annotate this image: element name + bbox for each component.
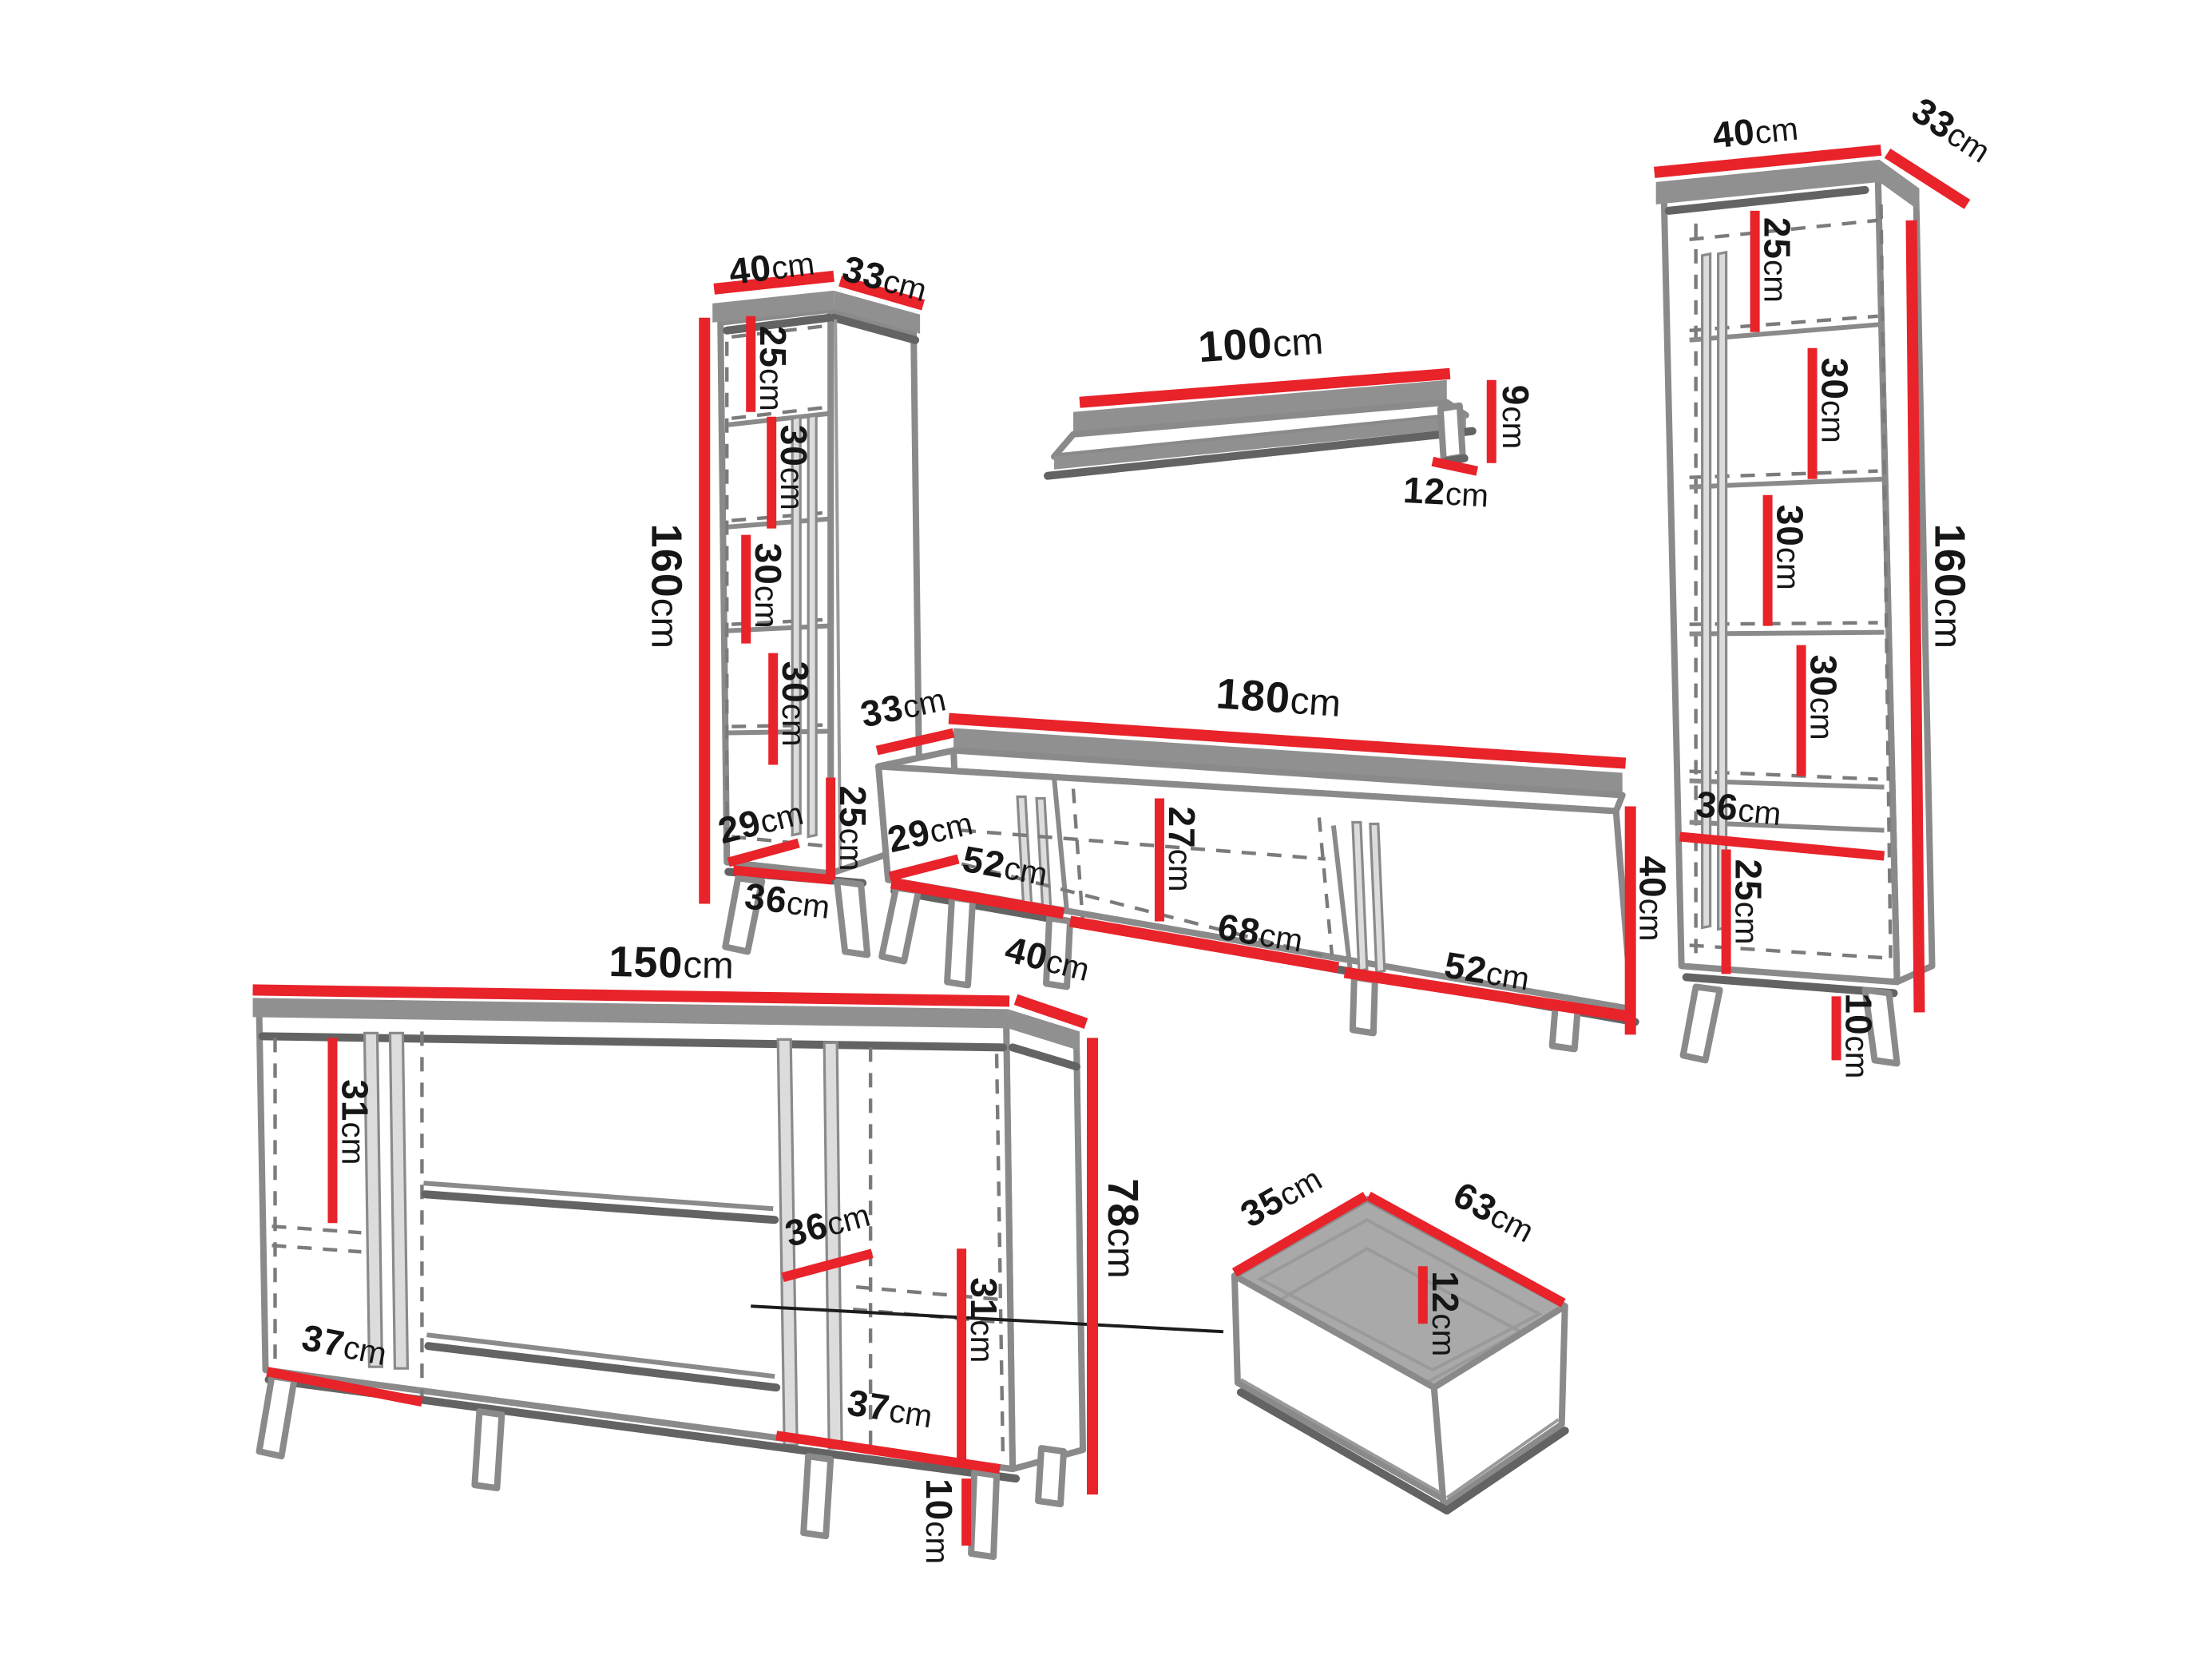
- drawer-detail: 35cm 63cm 12cm: [1234, 1157, 1565, 1510]
- diagram-canvas: 40cm 33cm 160cm 25cm 30cm 30cm 30cm 25cm…: [0, 0, 2212, 1659]
- door-handle-strip: [1703, 254, 1711, 928]
- dim-label-drawer-width: 63cm: [1447, 1173, 1542, 1250]
- furniture-leg: [1353, 977, 1375, 1033]
- furniture-leg: [803, 1456, 830, 1536]
- furniture-leg: [882, 887, 918, 961]
- wall-shelf: 100cm 9cm 12cm: [1048, 315, 1536, 514]
- dim-label-right-cabinet-section-1: 25cm: [1757, 217, 1798, 303]
- dim-label-sideboard-top-width: 150cm: [608, 938, 734, 988]
- furniture-leg: [837, 881, 867, 955]
- dim-line-shelf-depth: [1433, 462, 1477, 471]
- dim-line-sideboard-top-width: [253, 990, 1010, 1001]
- dim-label-left-cabinet-bottom-section: 25cm: [832, 786, 874, 871]
- furniture-leg: [971, 1472, 997, 1557]
- shelf-bracket: [1441, 406, 1463, 460]
- dim-label-tv-stand-height: 40cm: [1632, 855, 1674, 941]
- dim-label-shelf-width: 100cm: [1197, 315, 1325, 371]
- dim-line-right-cabinet-height: [1912, 220, 1920, 1013]
- dim-label-right-cabinet-section-2: 30cm: [1814, 358, 1856, 443]
- furniture-leg: [1683, 986, 1720, 1060]
- dim-label-sideboard-height: 78cm: [1099, 1178, 1147, 1278]
- dim-label-shelf-height: 9cm: [1495, 385, 1536, 450]
- furniture-leg: [260, 1376, 295, 1456]
- right-cabinet: 40cm 33cm 160cm 25cm 30cm 30cm 30cm 36cm…: [1655, 89, 2000, 1079]
- dim-label-tv-stand-inner-height: 27cm: [1161, 807, 1203, 892]
- dim-label-right-cabinet-height: 160cm: [1926, 524, 1974, 649]
- dim-label-right-cabinet-bottom-section: 25cm: [1728, 859, 1770, 944]
- dim-label-right-cabinet-top-depth: 33cm: [1905, 89, 1999, 171]
- dim-label-right-cabinet-top-width: 40cm: [1711, 106, 1800, 157]
- dim-label-right-cabinet-leg-height: 10cm: [1838, 993, 1880, 1078]
- dim-label-drawer-height: 12cm: [1425, 1271, 1466, 1356]
- dim-label-sideboard-leg-height: 10cm: [918, 1478, 960, 1564]
- dim-label-left-cabinet-section-3: 30cm: [747, 543, 789, 629]
- furniture-leg: [474, 1411, 501, 1488]
- dim-label-left-cabinet-section-2: 30cm: [773, 425, 815, 510]
- dim-label-left-cabinet-section-4: 30cm: [775, 661, 816, 747]
- dim-label-left-cabinet-section-1: 25cm: [752, 326, 794, 411]
- dim-label-shelf-depth: 12cm: [1402, 469, 1490, 515]
- dim-label-sideboard-left-inner-height: 31cm: [334, 1079, 375, 1165]
- furniture-dimension-diagram: 40cm 33cm 160cm 25cm 30cm 30cm 30cm 25cm…: [0, 0, 2212, 1659]
- door-handle-strip: [1718, 252, 1726, 930]
- furniture-leg: [1038, 1448, 1064, 1504]
- dim-label-tv-stand-top-width: 180cm: [1215, 669, 1342, 726]
- dim-label-left-cabinet-height: 160cm: [642, 524, 690, 649]
- sideboard: 150cm 40cm 78cm 31cm 37cm 36cm 31cm 37cm…: [253, 928, 1223, 1564]
- dim-label-sideboard-right-inner-height: 31cm: [963, 1277, 1005, 1363]
- dim-label-right-cabinet-section-4: 30cm: [1803, 655, 1845, 740]
- tv-stand: 180cm 33cm 29cm 52cm 68cm 52cm 27cm 40cm: [857, 669, 1674, 1049]
- sideboard-side-face: [1006, 1022, 1083, 1469]
- furniture-leg: [947, 897, 973, 985]
- dim-label-right-cabinet-section-3: 30cm: [1770, 505, 1811, 590]
